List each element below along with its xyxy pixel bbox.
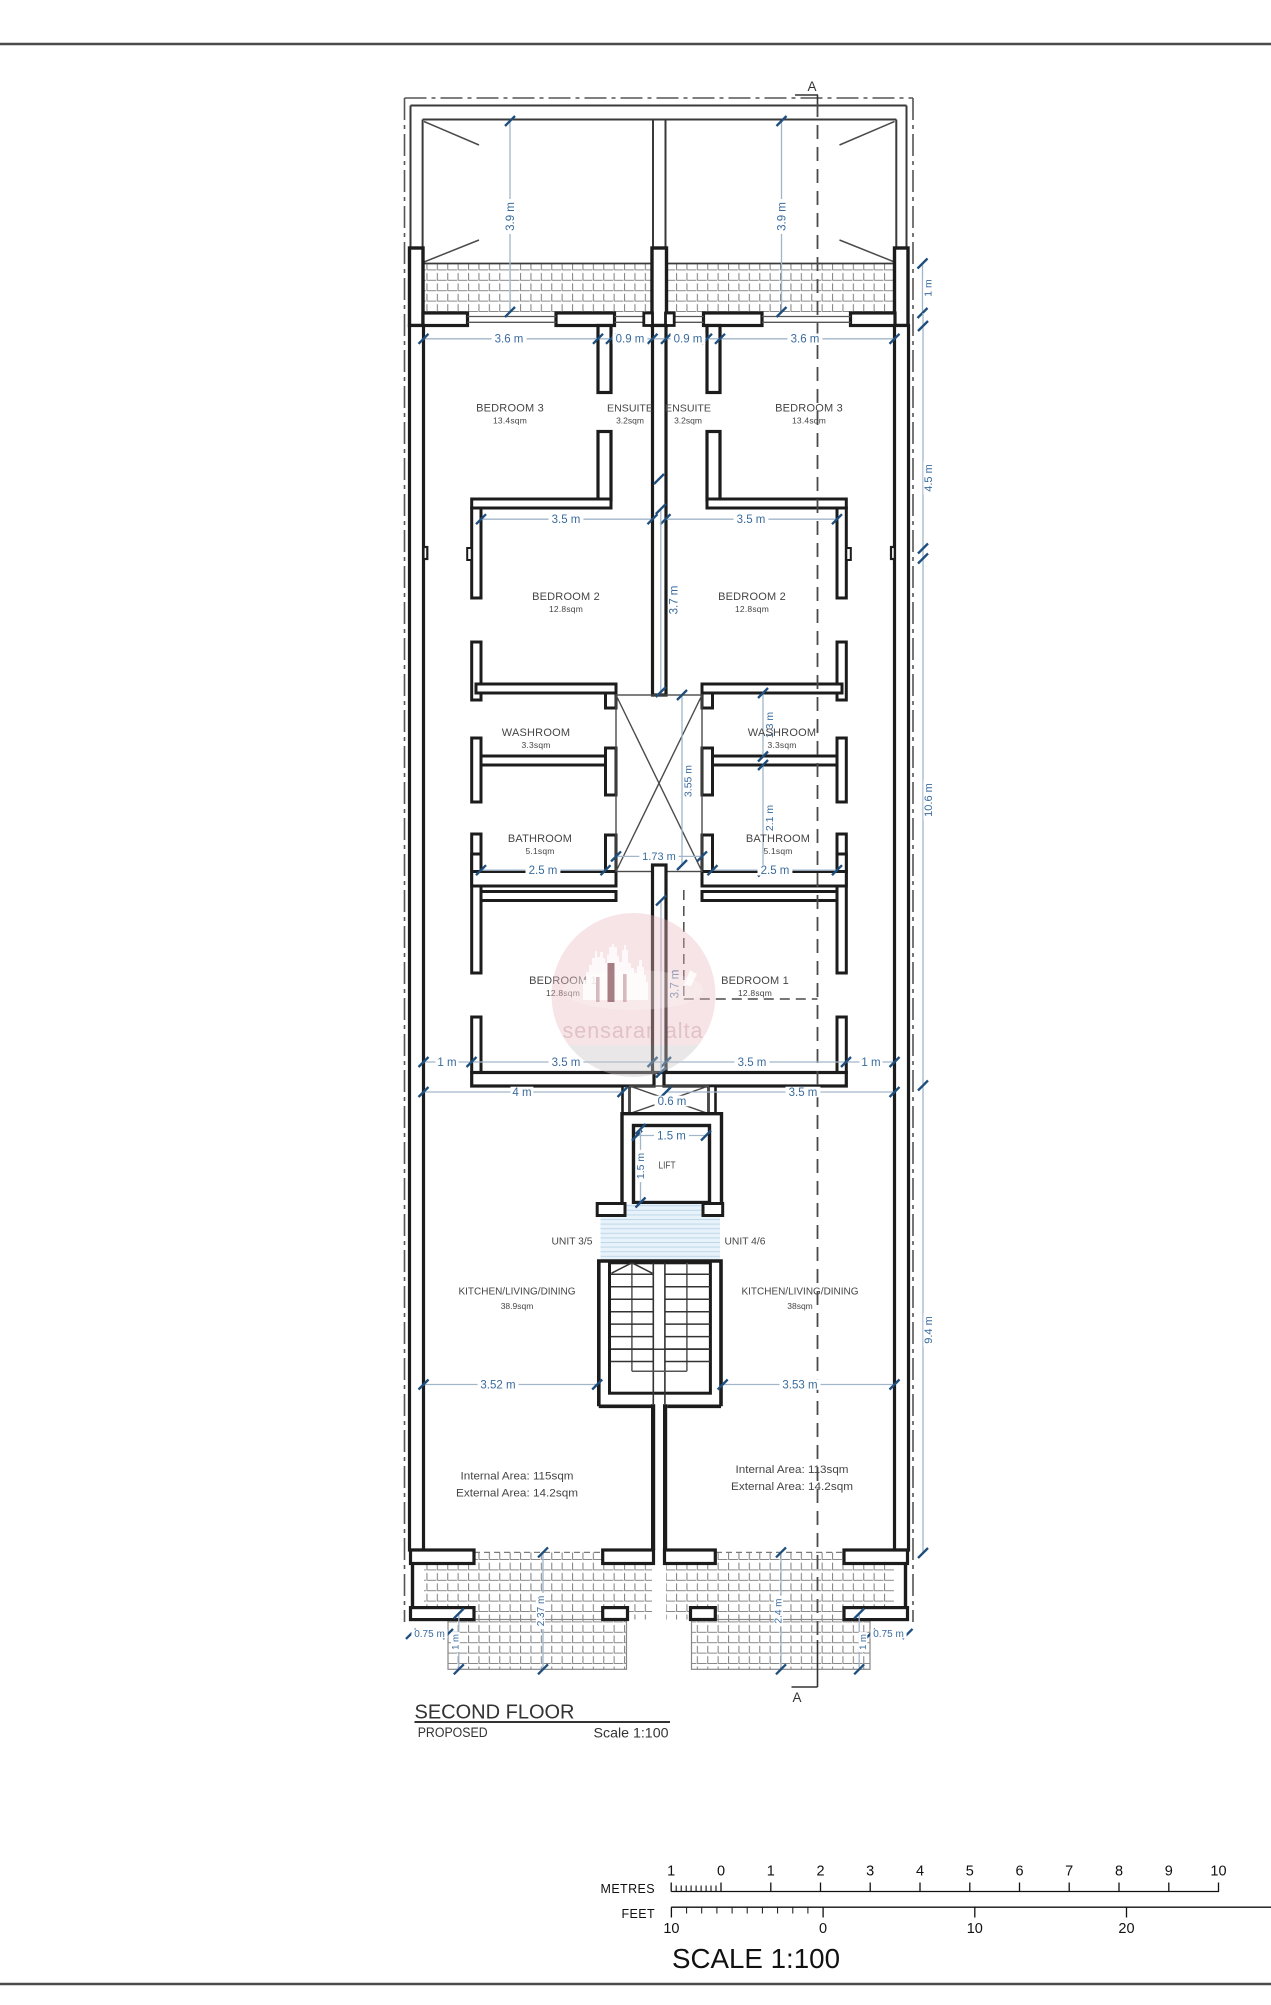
svg-text:2.37 m: 2.37 m <box>536 1596 547 1627</box>
svg-text:KITCHEN/LIVING/DINING: KITCHEN/LIVING/DINING <box>459 1287 576 1298</box>
svg-text:WASHROOM: WASHROOM <box>748 727 816 739</box>
svg-text:4 m: 4 m <box>512 1087 531 1099</box>
svg-text:7: 7 <box>1065 1864 1073 1880</box>
svg-text:1 m: 1 m <box>437 1057 456 1069</box>
svg-text:BATHROOM: BATHROOM <box>508 833 572 845</box>
svg-text:3.5 m: 3.5 m <box>789 1087 818 1099</box>
svg-text:External Area: 14.2sqm: External Area: 14.2sqm <box>731 1481 853 1493</box>
svg-text:1 m: 1 m <box>923 279 935 297</box>
svg-text:1 m: 1 m <box>858 1634 869 1650</box>
svg-text:Internal Area: 115sqm: Internal Area: 115sqm <box>461 1471 574 1483</box>
svg-text:6: 6 <box>1015 1864 1023 1880</box>
svg-text:12.8sqm: 12.8sqm <box>735 604 769 614</box>
svg-text:4: 4 <box>916 1864 924 1880</box>
svg-text:3.55 m: 3.55 m <box>683 765 695 797</box>
svg-text:BEDROOM 2: BEDROOM 2 <box>718 591 786 603</box>
svg-text:38.9sqm: 38.9sqm <box>501 1301 534 1311</box>
svg-text:5.1sqm: 5.1sqm <box>763 846 792 856</box>
svg-text:12.8sqm: 12.8sqm <box>738 988 772 998</box>
svg-text:METRES: METRES <box>601 1882 656 1896</box>
svg-text:1 m: 1 m <box>861 1057 880 1069</box>
svg-text:1: 1 <box>667 1864 675 1880</box>
svg-text:3.2sqm: 3.2sqm <box>674 416 702 426</box>
svg-text:10: 10 <box>663 1921 679 1937</box>
svg-text:PROPOSED: PROPOSED <box>418 1725 488 1740</box>
svg-text:1.5 m: 1.5 m <box>657 1130 686 1142</box>
svg-text:2.1 m: 2.1 m <box>764 805 776 832</box>
svg-text:ENSUITE: ENSUITE <box>607 403 653 415</box>
svg-text:Scale 1:100: Scale 1:100 <box>594 1725 669 1741</box>
svg-text:13.4sqm: 13.4sqm <box>792 416 826 426</box>
svg-text:A: A <box>792 1690 801 1705</box>
svg-text:9.4 m: 9.4 m <box>923 1316 935 1344</box>
svg-text:3.5 m: 3.5 m <box>738 1057 767 1069</box>
svg-text:3.5 m: 3.5 m <box>737 514 766 526</box>
svg-text:0.9 m: 0.9 m <box>674 334 703 346</box>
svg-text:KITCHEN/LIVING/DINING: KITCHEN/LIVING/DINING <box>742 1287 859 1298</box>
svg-text:3.6 m: 3.6 m <box>495 334 524 346</box>
svg-text:0: 0 <box>717 1864 725 1880</box>
svg-text:8: 8 <box>1115 1864 1123 1880</box>
svg-text:0.6 m: 0.6 m <box>658 1096 687 1108</box>
svg-text:1.5 m: 1.5 m <box>635 1153 647 1180</box>
svg-text:3.2sqm: 3.2sqm <box>616 416 644 426</box>
svg-text:BEDROOM 2: BEDROOM 2 <box>532 591 600 603</box>
svg-text:2.4 m: 2.4 m <box>774 1598 785 1623</box>
svg-text:External Area: 14.2sqm: External Area: 14.2sqm <box>456 1488 578 1500</box>
svg-text:3.53 m: 3.53 m <box>782 1379 817 1391</box>
svg-text:0.75 m: 0.75 m <box>873 1629 904 1640</box>
svg-text:FEET: FEET <box>621 1907 655 1921</box>
svg-text:3.6 m: 3.6 m <box>791 334 820 346</box>
svg-text:0.75 m: 0.75 m <box>414 1629 445 1640</box>
svg-text:4.5 m: 4.5 m <box>923 464 935 492</box>
svg-text:BATHROOM: BATHROOM <box>746 833 810 845</box>
svg-text:0.9 m: 0.9 m <box>616 334 645 346</box>
svg-text:5.1sqm: 5.1sqm <box>525 846 554 856</box>
svg-text:2.5 m: 2.5 m <box>529 865 558 877</box>
svg-text:3.5 m: 3.5 m <box>552 1057 581 1069</box>
svg-text:BEDROOM 3: BEDROOM 3 <box>476 403 544 415</box>
svg-text:Internal Area: 113sqm: Internal Area: 113sqm <box>736 1464 849 1476</box>
svg-text:UNIT 4/6: UNIT 4/6 <box>725 1236 766 1248</box>
svg-text:ENSUITE: ENSUITE <box>665 403 711 415</box>
svg-text:3.9 m: 3.9 m <box>505 202 517 231</box>
svg-text:5: 5 <box>966 1864 974 1880</box>
svg-text:3.5 m: 3.5 m <box>552 514 581 526</box>
svg-text:1.73 m: 1.73 m <box>642 851 676 863</box>
svg-text:3.7 m: 3.7 m <box>668 586 680 615</box>
svg-text:1: 1 <box>767 1864 775 1880</box>
svg-text:10: 10 <box>967 1921 983 1937</box>
svg-text:38sqm: 38sqm <box>787 1301 813 1311</box>
svg-text:10.6 m: 10.6 m <box>923 783 935 817</box>
svg-text:13.4sqm: 13.4sqm <box>493 416 527 426</box>
svg-text:0: 0 <box>819 1921 827 1937</box>
svg-text:20: 20 <box>1118 1921 1134 1937</box>
svg-text:10: 10 <box>1210 1864 1226 1880</box>
svg-text:SECOND FLOOR: SECOND FLOOR <box>415 1701 575 1723</box>
svg-text:3.52 m: 3.52 m <box>480 1379 515 1391</box>
svg-text:WASHROOM: WASHROOM <box>502 727 570 739</box>
svg-text:1 m: 1 m <box>451 1634 462 1650</box>
svg-text:12.8sqm: 12.8sqm <box>549 604 583 614</box>
svg-text:9: 9 <box>1165 1864 1173 1880</box>
svg-text:3.3sqm: 3.3sqm <box>521 740 550 750</box>
svg-text:2: 2 <box>816 1864 824 1880</box>
svg-text:3: 3 <box>866 1864 874 1880</box>
svg-text:LIFT: LIFT <box>659 1161 676 1172</box>
svg-text:BEDROOM 3: BEDROOM 3 <box>775 403 843 415</box>
svg-text:A: A <box>807 79 816 94</box>
svg-text:UNIT 3/5: UNIT 3/5 <box>552 1236 593 1248</box>
svg-text:2.5 m: 2.5 m <box>761 865 790 877</box>
svg-text:3.9 m: 3.9 m <box>776 202 788 231</box>
svg-text:3.3sqm: 3.3sqm <box>767 740 796 750</box>
svg-text:BEDROOM 1: BEDROOM 1 <box>721 975 789 987</box>
svg-text:SCALE 1:100: SCALE 1:100 <box>672 1943 840 1974</box>
